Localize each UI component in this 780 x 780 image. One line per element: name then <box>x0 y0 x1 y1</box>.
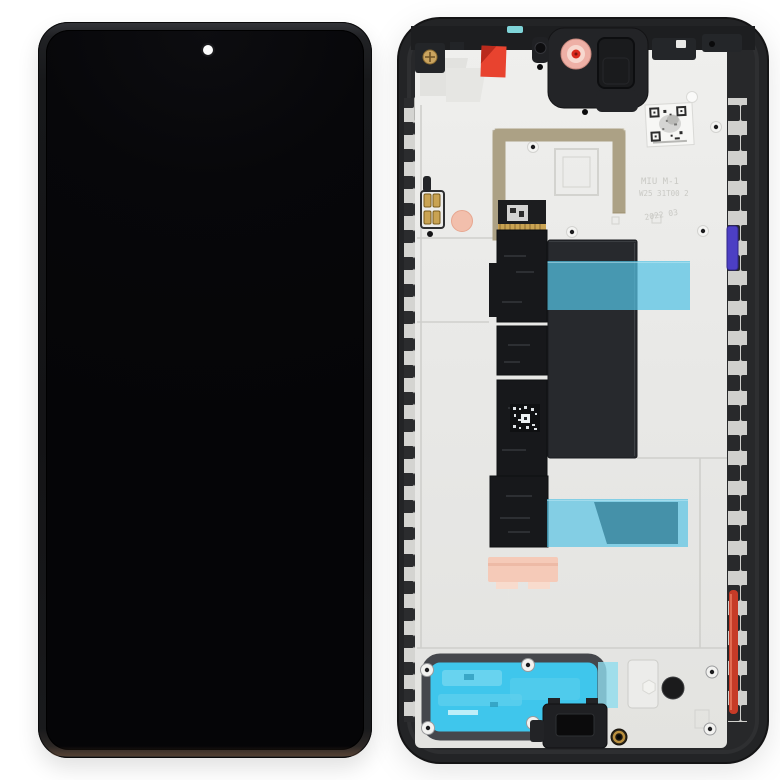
screw-icon <box>427 231 433 237</box>
main-flex-cable <box>489 200 548 547</box>
cyan-tape-upper <box>543 261 690 310</box>
red-sticker <box>480 46 506 78</box>
cyan-tape-lower <box>547 499 688 547</box>
adhesive-pink-dot <box>452 211 473 232</box>
black-pin <box>423 176 431 192</box>
hex-washer-icon <box>643 680 655 694</box>
purple-side-strip <box>727 226 738 270</box>
display-assembly-back: MIU M-1 W25 31T00 2 2022 03 <box>390 10 780 770</box>
display-assembly-front <box>38 22 372 758</box>
mic-hole-icon <box>662 677 684 699</box>
product-photo: MIU M-1 W25 31T00 2 2022 03 <box>0 0 780 780</box>
punch-hole-camera-icon <box>203 45 213 55</box>
proximity-sensor-icon <box>532 37 549 63</box>
bottom-bezel-sheen <box>48 746 362 756</box>
etched-text-2: W25 31T00 2 <box>639 189 689 198</box>
teal-strip <box>507 26 523 33</box>
gold-screw-icon <box>423 50 437 64</box>
camera-bracket-block <box>598 38 634 88</box>
etched-text-1: MIU M-1 <box>641 177 679 187</box>
flex-qr-code-icon <box>510 404 540 432</box>
side-rail-left <box>404 98 415 722</box>
red-side-adhesive-strip <box>729 590 738 714</box>
headphone-jack-icon <box>611 729 627 745</box>
qr-code-sticker-icon <box>645 103 694 147</box>
lcd-screen <box>46 30 364 750</box>
flex-connector <box>498 200 546 232</box>
front-camera-lens-icon <box>561 39 591 69</box>
